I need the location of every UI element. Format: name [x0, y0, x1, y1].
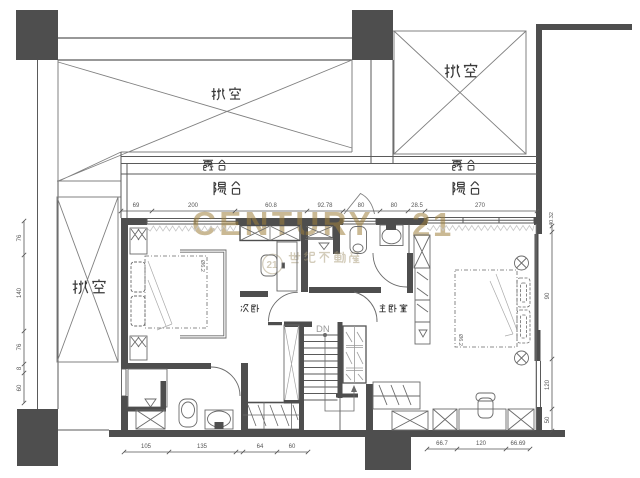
svg-text:80: 80 [358, 203, 365, 209]
svg-text:120: 120 [545, 379, 551, 390]
svg-text:80: 80 [391, 203, 398, 209]
svg-text:8: 8 [17, 366, 23, 370]
svg-text:90: 90 [545, 292, 551, 299]
svg-text:105: 105 [141, 444, 152, 450]
svg-text:69: 69 [133, 203, 140, 209]
svg-text:92.78: 92.78 [317, 203, 333, 209]
svg-text:135: 135 [197, 444, 208, 450]
svg-text:50: 50 [545, 416, 551, 423]
svg-text:28.5: 28.5 [411, 203, 423, 209]
svg-text:140: 140 [17, 287, 23, 298]
svg-text:CENTURY: CENTURY [192, 205, 374, 242]
svg-text:DN: DN [316, 324, 330, 335]
svg-text:200: 200 [188, 203, 199, 209]
svg-text:40.32: 40.32 [549, 212, 555, 226]
svg-text:60.8: 60.8 [265, 203, 277, 209]
svg-text:270: 270 [475, 203, 486, 209]
svg-text:21: 21 [267, 260, 279, 271]
svg-text:Ø6.2: Ø6.2 [457, 334, 463, 346]
svg-text:120: 120 [476, 441, 487, 447]
svg-text:76: 76 [17, 343, 23, 350]
svg-text:Ø6.2: Ø6.2 [199, 260, 205, 272]
svg-text:21: 21 [412, 206, 454, 243]
svg-text:66.69: 66.69 [510, 441, 526, 447]
svg-text:64: 64 [257, 444, 264, 450]
svg-text:60: 60 [17, 384, 23, 391]
svg-text:60: 60 [289, 444, 296, 450]
svg-text:66.7: 66.7 [436, 441, 448, 447]
svg-text:76: 76 [17, 234, 23, 241]
